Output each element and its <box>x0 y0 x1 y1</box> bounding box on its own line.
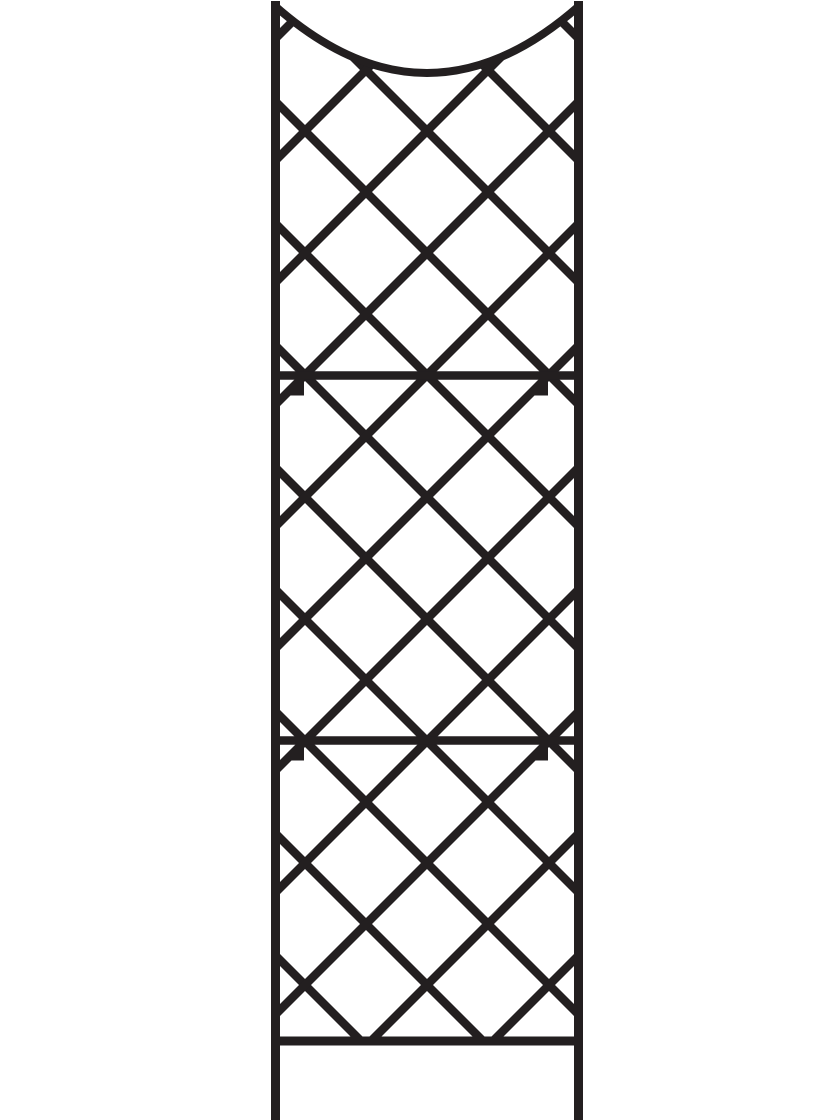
background <box>0 0 840 1120</box>
trellis-line-art <box>0 0 840 1120</box>
trellis-illustration <box>0 0 840 1120</box>
